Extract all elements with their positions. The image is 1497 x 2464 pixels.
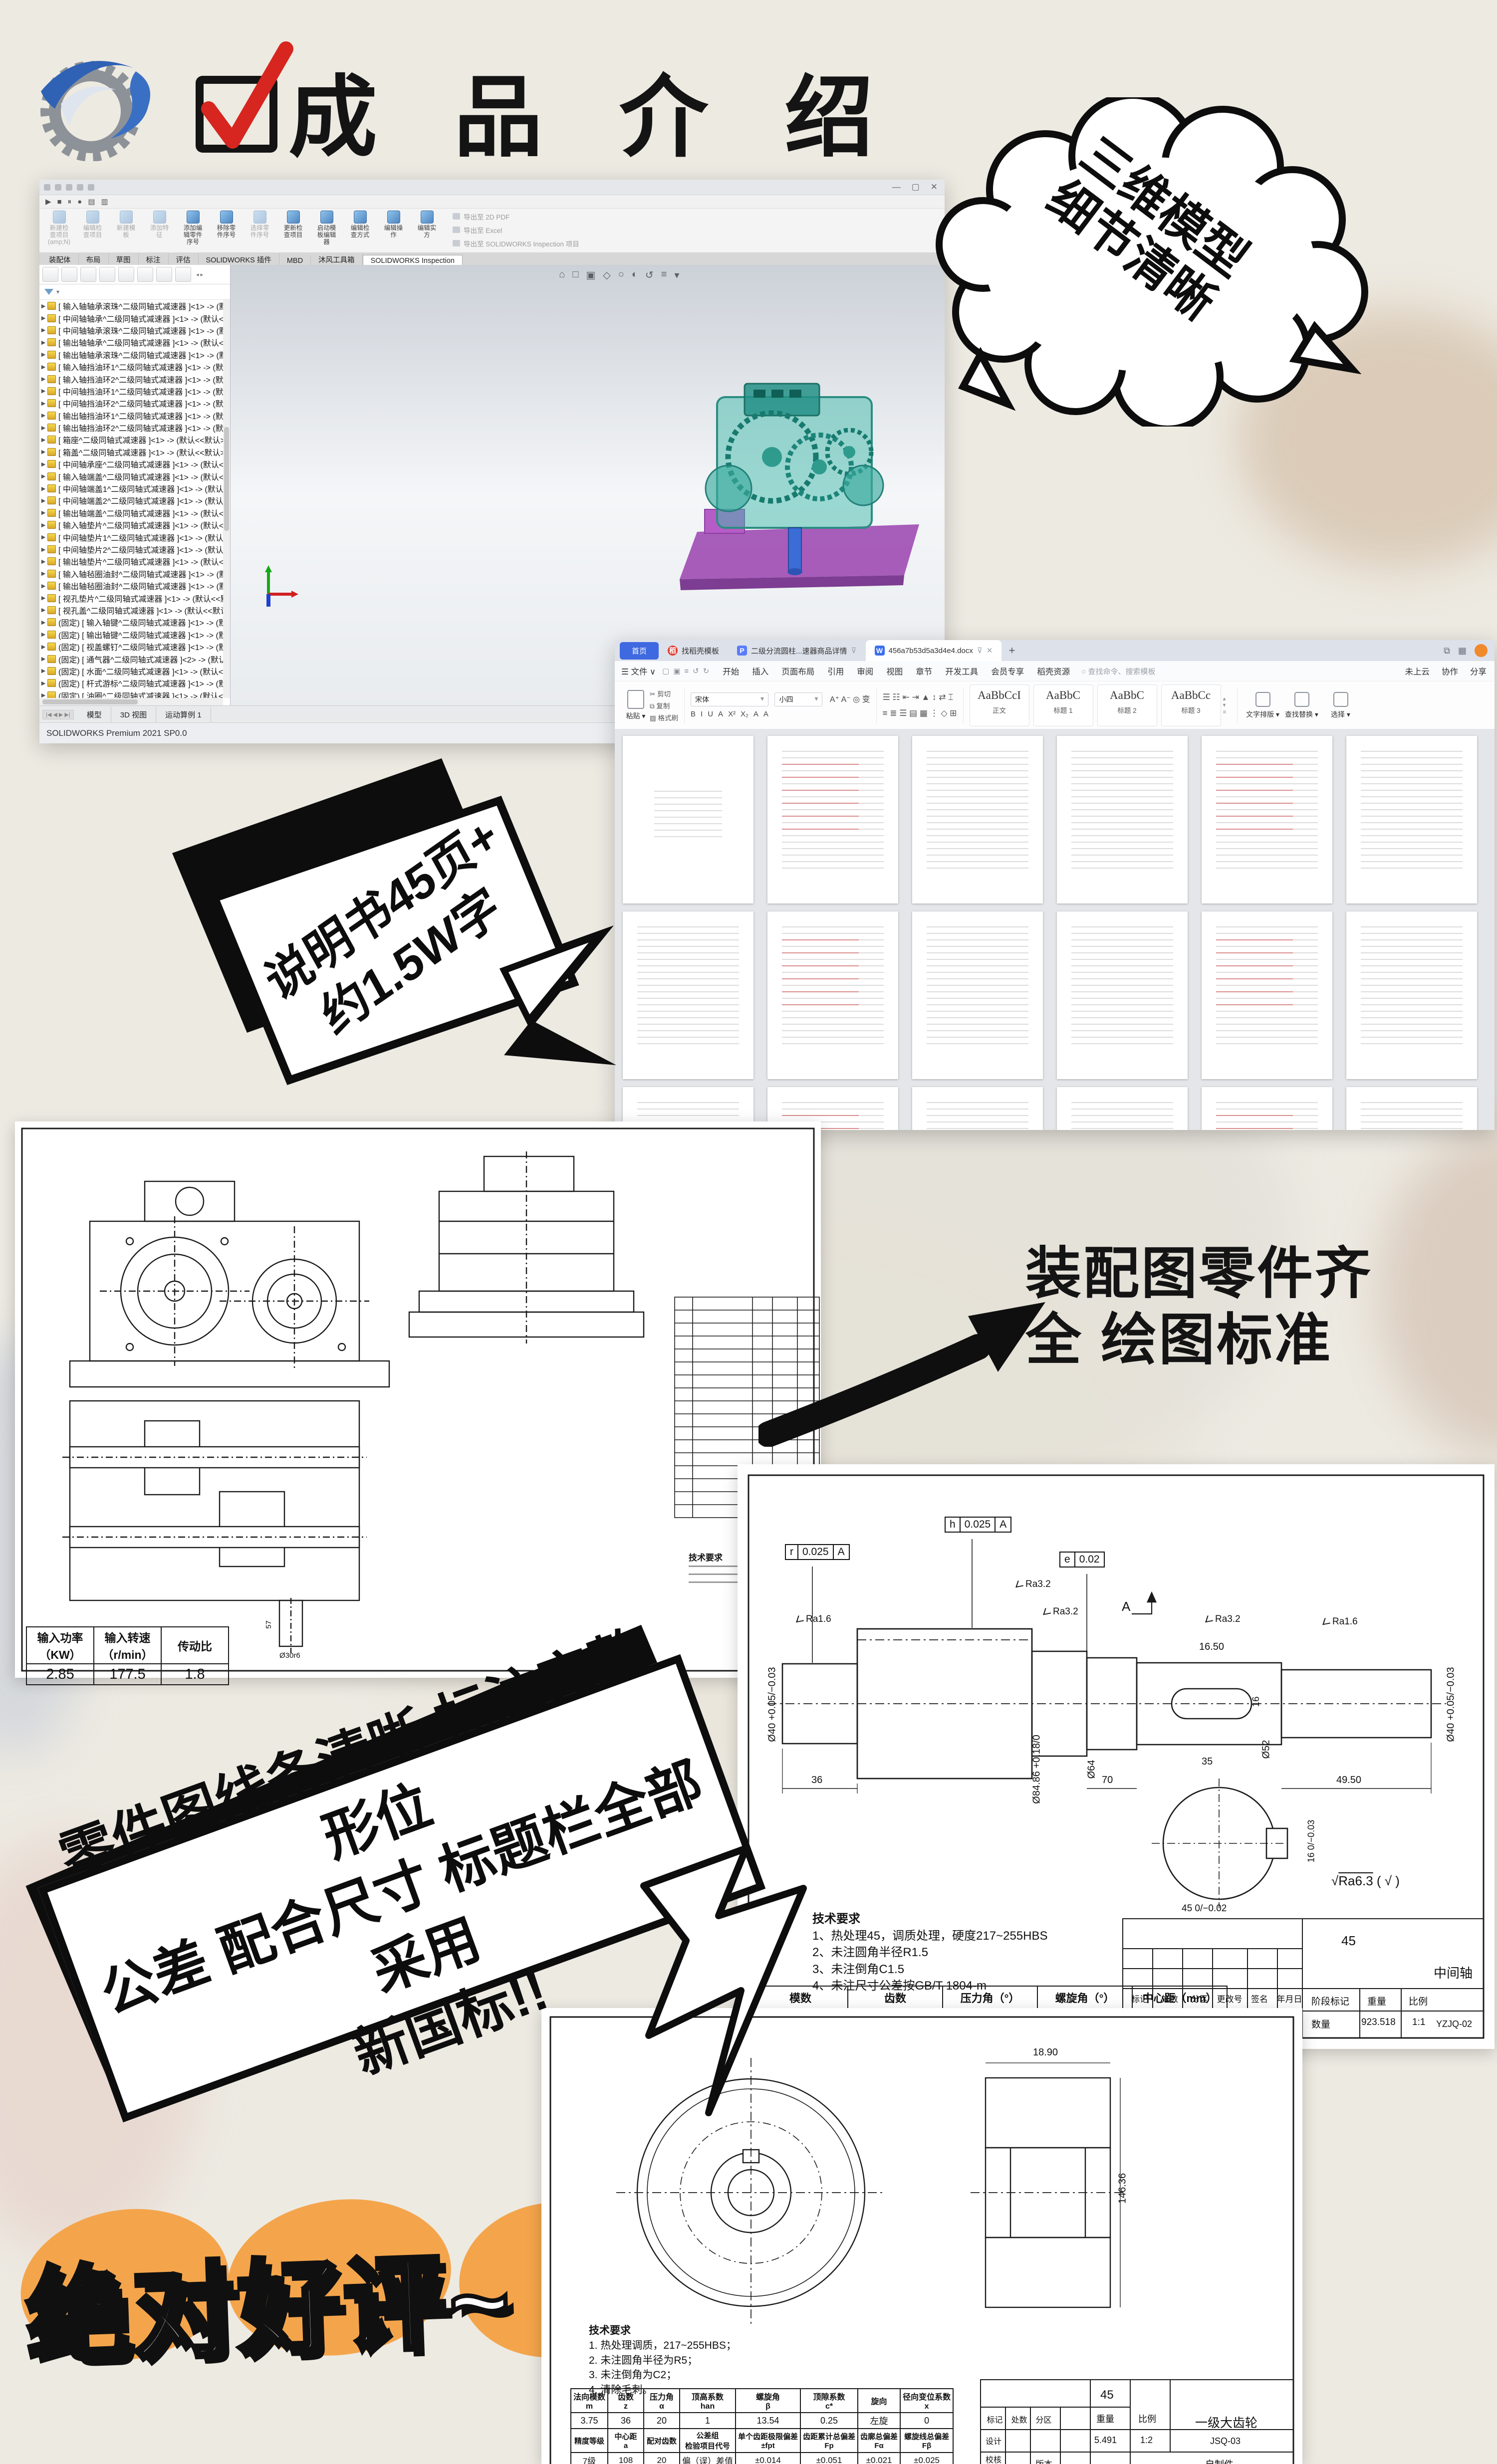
account-action[interactable]: 未上云 (1405, 665, 1430, 677)
tree-horizontal-scrollbar[interactable] (39, 698, 223, 706)
account-action[interactable]: 分享 (1470, 665, 1487, 677)
export-item[interactable]: 导出至 Excel (453, 225, 579, 235)
tree-item[interactable]: ▶ [ 输入轴毡圈油封^二级同轴式减速器 ]<1> -> (默认< (39, 568, 223, 580)
tree-item[interactable]: ▶ [ 中间轴轴承^二级同轴式减速器 ]<1> -> (默认<<默 (39, 312, 223, 324)
displaymanager-icon[interactable] (118, 267, 134, 282)
ribbon-button[interactable]: 新建检 查项目 (amp;N) (42, 209, 76, 245)
expand-arrow-icon[interactable]: ▶ (39, 607, 47, 613)
tree-item[interactable]: ▶ [ 输出轴挡油环1^二级同轴式减速器 ]<1> -> (默认<< (39, 410, 223, 422)
sheet-nav-icons[interactable]: |◀ ◀ ▶ ▶| (42, 710, 74, 719)
tree-item[interactable]: ▶ [ 输入轴挡油环2^二级同轴式减速器 ]<1> -> (默认<< (39, 373, 223, 385)
wps-ribbon: 粘贴 ▾ ✂ 剪切 ⧉ 复制 ▨ 格式刷 宋体▾ 小四▾ A⁺ A⁻ ◎ 变 B… (615, 681, 1495, 730)
shaft-tech-requirements: 技术要求 1、热处理45，调质处理，硬度217~255HBS2、未注圆角半径R1… (812, 1911, 1048, 1995)
pin-icon[interactable]: ⊽ (977, 646, 983, 655)
font-grow-shrink-icons[interactable]: A⁺ A⁻ ◎ 变 (830, 695, 870, 704)
viewport-tool-icon[interactable]: ○ (618, 269, 624, 281)
tree-item-label: [ 输入轴端盖^二级同轴式减速器 ]<1> -> (默认<<默 (58, 470, 223, 482)
sw-tab[interactable]: 标注 (139, 253, 169, 266)
tree-item[interactable]: ▶ [ 箱盖^二级同轴式减速器 ]<1> -> (默认<<默认>_显 (39, 446, 223, 458)
page-thumbnail[interactable] (1057, 911, 1188, 1079)
macro-icon[interactable]: ▶ (45, 197, 51, 206)
expand-arrow-icon[interactable]: ▶ (39, 570, 47, 577)
propertymanager-icon[interactable] (61, 267, 77, 282)
part-icon (47, 412, 56, 420)
tree-item[interactable]: ▶ (固定) [ 通气器^二级同轴式减速器 ]<2> -> (默认<< (39, 653, 223, 665)
ribbon-button-icon (153, 211, 166, 224)
tree-item-label: [ 箱盖^二级同轴式减速器 ]<1> -> (默认<<默认>_显 (58, 446, 223, 458)
tab-presentation[interactable]: P 二级分流圆柱...速器商品详情 ⊽ (728, 640, 866, 661)
expand-arrow-icon[interactable]: ▶ (39, 364, 47, 370)
ribbon-button-icon (253, 211, 266, 224)
viewport-tool-icon[interactable]: ≡ (661, 269, 667, 281)
expand-arrow-icon[interactable]: ▶ (39, 668, 47, 674)
wps-menu-item[interactable]: 开始 (723, 665, 739, 677)
tree-item[interactable]: ▶ [ 中间轴轴承滚珠^二级同轴式减速器 ]<1> -> (默认< (39, 324, 223, 336)
tree-item[interactable]: ▶ [ 输出轴挡油环2^二级同轴式减速器 ]<1> -> (默认<< (39, 422, 223, 434)
tree-item-label: [ 输入轴轴承滚珠^二级同轴式减速器 ]<1> -> (默认< (58, 300, 223, 312)
expand-arrow-icon[interactable]: ▶ (39, 692, 47, 698)
close-tab-icon[interactable]: ✕ (987, 646, 993, 655)
sw-tab[interactable]: 评估 (169, 253, 199, 266)
wps-menu-item[interactable]: 页面布局 (781, 665, 814, 677)
wps-menu-item[interactable]: 插入 (752, 665, 768, 677)
expand-arrow-icon[interactable]: ▶ (39, 412, 47, 419)
page-thumbnail[interactable] (1346, 736, 1477, 903)
file-menu[interactable]: ☰ 文件 ∨ (621, 665, 656, 677)
ppt-file-icon: P (737, 646, 747, 656)
shaft-drawing-sheet: r0.025A h0.025A e0.02 Ra1.6 Ra3.2 Ra3.2 … (738, 1464, 1495, 2049)
expand-arrow-icon[interactable]: ▶ (39, 546, 47, 553)
tree-item[interactable]: ▶ [ 输入轴垫片^二级同轴式减速器 ]<1> -> (默认<<默 (39, 519, 223, 531)
ribbon-button-icon (387, 211, 400, 224)
ribbon-button[interactable]: 添加特 征 (143, 209, 176, 245)
param-value: 20 (644, 2413, 680, 2429)
wps-document-area[interactable] (615, 729, 1495, 1130)
tb-label: 设计 (986, 2433, 1001, 2452)
page-thumbnail[interactable] (1346, 911, 1477, 1079)
viewport-tool-icon[interactable]: ↺ (645, 269, 654, 281)
tree-item-label: (固定) [ 视盖螺钉^二级同轴式减速器 ]<1> -> (默认< (58, 641, 223, 653)
panel-arrows[interactable]: ◂ ▸ (196, 271, 203, 278)
param-value: 13.54 (736, 2413, 800, 2429)
format-button[interactable]: X² (728, 710, 736, 718)
wps-menu-item[interactable]: 章节 (916, 665, 932, 677)
tool-button[interactable]: 选择 ▾ (1321, 692, 1360, 719)
style-label: 标题 1 (1034, 705, 1093, 715)
param-header2: 螺旋线总偏差 Fβ (900, 2429, 953, 2453)
part-icon (47, 606, 56, 614)
tree-item[interactable]: ▶ (固定) [ 杆式游标^二级同轴式减速器 ]<1> -> (默认< (39, 677, 223, 689)
tab-document-active[interactable]: W 456a7b53d5a3d4e4.docx ⊽ ✕ (866, 640, 1002, 661)
tree-item-label: [ 输出轴挡油环2^二级同轴式减速器 ]<1> -> (默认<< (58, 422, 223, 434)
gearbox-3d-model[interactable] (670, 360, 945, 599)
viewport-tool-icon[interactable]: ▾ (674, 269, 679, 281)
page-thumbnail[interactable] (767, 911, 898, 1079)
format-button[interactable]: A (763, 710, 768, 718)
expand-arrow-icon[interactable]: ▶ (39, 509, 47, 516)
tree-item[interactable]: ▶ [ 输出轴轴承滚珠^二级同轴式减速器 ]<1> -> (默认< (39, 349, 223, 361)
paragraph-group[interactable]: ☰ ☷ ⇤ ⇥ ▲ ↕ ⇄ ⌶ ≡ ≣ ☰ ▤ ▦ ⋮ ◇ ⊞ (883, 689, 957, 722)
wps-menu-item[interactable]: 审阅 (857, 665, 873, 677)
format-button[interactable]: A (753, 710, 758, 718)
tree-item[interactable]: ▶ [ 中间轴挡油环2^二级同轴式减速器 ]<1> -> (默认<< (39, 397, 223, 409)
gtb-weight-label: 重量 (1096, 2412, 1114, 2425)
power-table-value: 177.5 (94, 1664, 161, 1685)
tree-item-label: [ 输出轴轴承滚珠^二级同轴式减速器 ]<1> -> (默认< (58, 349, 223, 361)
expand-arrow-icon[interactable]: ▶ (39, 388, 47, 394)
expand-arrow-icon[interactable]: ▶ (39, 558, 47, 565)
ribbon-button-icon (354, 211, 367, 224)
gtb-material: 45 (1100, 2388, 1114, 2402)
tree-item[interactable]: ▶ (固定) [ 水面^二级同轴式减速器 ]<1> -> (默认<<默 (39, 665, 223, 677)
tree-item-label: [ 中间轴端盖2^二级同轴式减速器 ]<1> -> (默认<<默 (58, 494, 223, 506)
page-thumbnails (623, 736, 1491, 1130)
tree-item[interactable]: ▶ [ 中间轴端盖2^二级同轴式减速器 ]<1> -> (默认<<默 (39, 494, 223, 506)
wps-menu-item[interactable]: 视图 (886, 665, 903, 677)
export-item[interactable]: 导出至 2D PDF (453, 212, 579, 222)
paste-button[interactable]: 粘贴 ▾ (622, 690, 650, 721)
wps-tabbar: 首页 稻 找稻壳模板 P 二级分流圆柱...速器商品详情 ⊽ W 456a7b5… (615, 640, 1495, 661)
param-value2: 偏（误）差值 (680, 2453, 736, 2464)
part-icon (47, 570, 56, 578)
tb-label: 更改号 (1215, 1992, 1245, 2005)
gear-table-header: 压力角（°） (943, 1986, 1037, 2009)
tree-item-label: [ 输入轴毡圈油封^二级同轴式减速器 ]<1> -> (默认< (58, 568, 223, 580)
export-item[interactable]: 导出至 SOLIDWORKS Inspection 项目 (453, 238, 579, 248)
format-row: BIUAX²X₂AA (691, 710, 870, 718)
banner-tail (639, 1841, 808, 2130)
manual-bubble: 说明书45页+约1.5W字 (160, 748, 639, 1108)
expand-arrow-icon[interactable]: ▶ (39, 595, 47, 601)
wps-menu-item[interactable]: 引用 (827, 665, 844, 677)
param-header: 顶隙系数 c* (800, 2389, 858, 2413)
ribbon-button[interactable]: 新建模 板 (109, 209, 143, 245)
expand-arrow-icon[interactable]: ▶ (39, 534, 47, 540)
tree-item-label: [ 视孔盖^二级同轴式减速器 ]<1> -> (默认<<默认>_ (58, 604, 223, 616)
power-table-header: 输入转速（r/min） (94, 1627, 161, 1664)
wps-menu-item[interactable]: 开发工具 (945, 665, 978, 677)
tree-item[interactable]: ▶ [ 输入轴轴承滚珠^二级同轴式减速器 ]<1> -> (默认< (39, 300, 223, 312)
ribbon-button-icon (120, 211, 133, 224)
expand-arrow-icon[interactable]: ▶ (39, 680, 47, 686)
sw-bottom-tab[interactable]: 模型 (78, 707, 111, 722)
datum-frame-e: e0.02 (1059, 1552, 1105, 1568)
gear-logo (31, 44, 181, 161)
page-thumbnail[interactable] (1202, 736, 1332, 903)
gear-dim-v: 146.36 (1117, 2156, 1129, 2221)
dim: 49.50 (1336, 1775, 1361, 1786)
promo-poster: 成 品 介 绍 — ▢ ✕ ▶■⏸●▤▥ 新建检 查项目 (amp;N) (0, 0, 1497, 2464)
ribbon-button[interactable]: 编辑操 作 (377, 209, 410, 245)
expand-arrow-icon[interactable]: ▶ (39, 619, 47, 626)
tree-item[interactable]: ▶ [ 输出轴垫片^二级同轴式减速器 ]<1> -> (默认<<默 (39, 555, 223, 567)
format-button[interactable]: U (708, 710, 713, 718)
expand-arrow-icon[interactable]: ▶ (39, 437, 47, 443)
featuremanager-icon[interactable] (42, 267, 58, 282)
format-button[interactable]: A (718, 710, 723, 718)
gear-table-header: 螺旋角（°） (1037, 1986, 1132, 2009)
sw-bottom-tab[interactable]: 3D 视图 (111, 707, 156, 722)
configuration-icon[interactable] (80, 267, 96, 282)
tree-item[interactable]: ▶ [ 输入轴端盖^二级同轴式减速器 ]<1> -> (默认<<默 (39, 470, 223, 482)
expand-arrow-icon[interactable]: ▶ (39, 351, 47, 358)
tree-item-label: (固定) [ 输入轴键^二级同轴式减速器 ]<1> -> (默认< (58, 616, 223, 628)
dim: Ø40 +0.05/−0.03 (767, 1640, 778, 1770)
style-item[interactable]: AaBbC 标题 2 (1097, 684, 1157, 726)
style-sample: AaBbCc (1162, 689, 1221, 702)
expand-arrow-icon[interactable]: ▶ (39, 425, 47, 431)
tree-item[interactable]: ▶ [ 箱座^二级同轴式减速器 ]<1> -> (默认<<默认>_显 (39, 434, 223, 446)
styles-scroll[interactable]: ▴▾≡ (1223, 695, 1231, 715)
tree-item[interactable]: ▶ [ 中间轴垫片1^二级同轴式减速器 ]<1> -> (默认<<默 (39, 531, 223, 543)
sw-tab[interactable]: SOLIDWORKS 插件 (199, 253, 279, 266)
macro-icon[interactable]: ⏸ (68, 198, 72, 206)
window-view-icon[interactable]: ⧉ (1444, 646, 1450, 656)
part-icon (47, 436, 56, 444)
format-painter-button[interactable]: ▨ 格式刷 (650, 712, 678, 722)
expand-arrow-icon[interactable]: ▶ (39, 376, 47, 382)
export-icon (453, 213, 460, 220)
ribbon-button[interactable]: 添加编 辑零件 序号 (176, 209, 210, 245)
assembly-drawing-sheet: 57 Ø30r6 技术要求 输入功率（KW）输入转速（r/min）传动比 2.8… (15, 1121, 821, 1678)
expand-arrow-icon[interactable]: ▶ (39, 473, 47, 479)
part-icon (47, 351, 56, 359)
tb-code: YZJQ-02 (1436, 2019, 1472, 2029)
wps-menu-item[interactable]: 会员专享 (991, 665, 1024, 677)
pin-icon[interactable]: ⊽ (851, 646, 857, 655)
tb-label: 年月日 (1274, 1992, 1304, 2005)
simulation-icon[interactable] (156, 267, 172, 282)
tb-row-labels: 标记处数分区更改号签名年月日 (1125, 1992, 1304, 2005)
viewport-tool-icon[interactable]: □ (572, 269, 578, 281)
tree-item[interactable]: ▶ [ 中间轴端盖1^二级同轴式减速器 ]<1> -> (默认<<默 (39, 482, 223, 494)
new-tab-button[interactable]: + (1008, 644, 1015, 657)
dim: Ø84.86 +0.18/0 (1031, 1705, 1043, 1834)
sw-tab[interactable]: 装配体 (41, 253, 79, 266)
viewport-tool-icon[interactable]: ▣ (586, 269, 595, 281)
param-value: 左旋 (858, 2413, 900, 2429)
ribbon-button[interactable]: 启动模 板编辑 器 (310, 209, 343, 245)
page-thumbnail[interactable] (623, 911, 753, 1079)
tab-home[interactable]: 首页 (620, 642, 659, 660)
style-item[interactable]: AaBbC 标题 1 (1033, 684, 1093, 726)
tb-scale: 1:1 (1412, 2017, 1425, 2028)
expand-arrow-icon[interactable]: ▶ (39, 497, 47, 504)
sw-tab[interactable]: 草图 (109, 253, 139, 266)
page-thumbnail[interactable] (1057, 736, 1188, 903)
macro-icon[interactable]: ● (77, 198, 82, 206)
expand-arrow-icon[interactable]: ▶ (39, 644, 47, 650)
tree-vertical-scrollbar[interactable] (223, 300, 230, 698)
expand-arrow-icon[interactable]: ▶ (39, 485, 47, 492)
cut-button[interactable]: ✂ 剪切 (650, 688, 678, 698)
viewport-tool-icon[interactable]: ◇ (603, 269, 610, 281)
account-action[interactable]: 协作 (1442, 665, 1458, 677)
tree-item[interactable]: ▶ [ 输出轴轴承^二级同轴式减速器 ]<1> -> (默认<<默 (39, 336, 223, 348)
tree-item-label: [ 输入轴垫片^二级同轴式减速器 ]<1> -> (默认<<默 (58, 519, 223, 531)
word-file-icon: W (875, 646, 885, 656)
maximize-icon[interactable]: ▢ (912, 182, 920, 192)
style-item[interactable]: AaBbCc 标题 3 (1161, 684, 1221, 726)
tab-template[interactable]: 稻 找稻壳模板 (659, 640, 728, 661)
tree-item-label: [ 输出轴轴承^二级同轴式减速器 ]<1> -> (默认<<默 (58, 336, 223, 348)
tree-item[interactable]: ▶ [ 输入轴挡油环1^二级同轴式减速器 ]<1> -> (默认<< (39, 361, 223, 373)
tree-item-label: [ 中间轴轴承^二级同轴式减速器 ]<1> -> (默认<<默 (58, 312, 223, 324)
page-thumbnail[interactable] (1346, 1087, 1477, 1130)
expand-arrow-icon[interactable]: ▶ (39, 339, 47, 346)
macro-icon[interactable]: ■ (57, 198, 62, 206)
sw-tab[interactable]: 沐风工具箱 (311, 253, 363, 266)
quick-icons[interactable]: ▢▣≡↺↻ (662, 667, 713, 675)
param-value: 36 (608, 2413, 644, 2429)
ribbon-button[interactable]: 移除零 件序号 (210, 209, 243, 245)
ribbon-button-icon (220, 211, 233, 224)
expand-arrow-icon[interactable]: ▶ (39, 315, 47, 321)
format-button[interactable]: I (701, 710, 703, 718)
param-header: 旋向 (858, 2389, 900, 2413)
expand-arrow-icon[interactable]: ▶ (39, 631, 47, 638)
tree-item-label: (固定) [ 通气器^二级同轴式减速器 ]<2> -> (默认<< (58, 653, 223, 665)
sw-tree-filter[interactable]: ▾ (39, 284, 230, 300)
cam-icon[interactable] (137, 267, 153, 282)
param-header: 压力角 α (644, 2389, 680, 2413)
sw-titlebar: — ▢ ✕ (39, 180, 945, 195)
gtb-row-labels: 标记处数分区 (983, 2413, 1056, 2425)
datum-frame-r: r0.025A (785, 1544, 850, 1560)
ribbon-button[interactable]: 更新检 查项目 (276, 209, 310, 245)
expand-arrow-icon[interactable]: ▶ (39, 400, 47, 407)
search-input[interactable]: ○ 查找命令、搜索模板 (1081, 666, 1155, 676)
macro-icon[interactable]: ▤ (88, 197, 95, 206)
tree-item[interactable]: ▶ [ 视孔垫片^二级同轴式减速器 ]<1> -> (默认<<默认 (39, 592, 223, 604)
part-icon (47, 618, 56, 626)
tb-qty: 数量 (1311, 2017, 1330, 2030)
ribbon-button-label: 编辑操 作 (377, 224, 410, 238)
gtb-code: JSQ-03 (1210, 2436, 1241, 2447)
font-size-select[interactable]: 小四▾ (774, 692, 822, 706)
dim: Ø40 +0.05/−0.03 (1446, 1640, 1457, 1770)
param-header: 径向变位系数 x (900, 2389, 953, 2413)
assembly-tech-title: 技术要求 (689, 1551, 723, 1563)
part-icon (47, 545, 56, 553)
ribbon-button[interactable]: 选择零 件序号 (243, 209, 276, 245)
wps-menubar: ☰ 文件 ∨ ▢▣≡↺↻ 开始插入页面布局引用审阅视图章节开发工具会员专享稻壳资… (615, 661, 1495, 681)
tree-item[interactable]: ▶ [ 视孔盖^二级同轴式减速器 ]<1> -> (默认<<默认>_ (39, 604, 223, 616)
param-header2: 公差组 检验项目代号 (680, 2429, 736, 2453)
tree-item[interactable]: ▶ [ 中间轴挡油环1^二级同轴式减速器 ]<1> -> (默认<< (39, 385, 223, 397)
expand-arrow-icon[interactable]: ▶ (39, 522, 47, 528)
ribbon-button-label: 添加编 辑零件 序号 (176, 224, 210, 245)
style-sample: AaBbCcI (970, 689, 1029, 702)
style-item[interactable]: AaBbCcI 正文 (970, 684, 1029, 726)
minimize-icon[interactable]: — (892, 182, 901, 192)
page-thumbnail[interactable] (912, 736, 1043, 903)
expand-arrow-icon[interactable]: ▶ (39, 461, 47, 467)
orientation-triad-icon (258, 564, 303, 609)
tree-item[interactable]: ▶ [ 输出轴毡圈油封^二级同轴式减速器 ]<1> -> (默认< (39, 580, 223, 592)
page-thumbnail[interactable] (912, 911, 1043, 1079)
tree-item[interactable]: ▶ [ 输出轴端盖^二级同轴式减速器 ]<1> -> (默认<<默 (39, 507, 223, 519)
tree-item-label: [ 输出轴垫片^二级同轴式减速器 ]<1> -> (默认<<默 (58, 555, 223, 567)
styles-gallery: AaBbCcI 正文 AaBbC 标题 1 AaBbC 标题 2 Aa (970, 684, 1221, 726)
page-thumbnail[interactable] (1202, 911, 1332, 1079)
wps-menu-item[interactable]: 稻壳资源 (1037, 665, 1070, 677)
expand-arrow-icon[interactable]: ▶ (39, 327, 47, 333)
ribbon-button-label: 编辑检 查方式 (343, 224, 377, 238)
macro-icon[interactable]: ▥ (101, 197, 108, 206)
tree-item-label: [ 中间轴垫片2^二级同轴式减速器 ]<1> -> (默认<<默 (58, 543, 223, 555)
tool-button[interactable]: 查找替换 ▾ (1282, 692, 1321, 719)
tree-item-label: [ 视孔垫片^二级同轴式减速器 ]<1> -> (默认<<默认 (58, 592, 223, 604)
ribbon-button[interactable]: 编辑实 方 (410, 209, 444, 245)
tb-label: 标记 (983, 2413, 1007, 2425)
expand-arrow-icon[interactable]: ▶ (39, 656, 47, 662)
tree-item[interactable]: ▶ (固定) [ 油圈^二级同轴式减速器 ]<1> -> (默认<<默 (39, 689, 223, 698)
style-label: 正文 (970, 705, 1029, 715)
tech-line: 3. 未注倒角为C2； (589, 2368, 737, 2383)
part-icon (47, 448, 56, 456)
viewport-tool-icon[interactable]: ◐ (632, 269, 638, 281)
style-label: 标题 2 (1098, 705, 1157, 715)
page-thumbnail[interactable] (623, 736, 753, 903)
tree-item-label: (固定) [ 油圈^二级同轴式减速器 ]<1> -> (默认<<默 (58, 689, 223, 698)
font-name-select[interactable]: 宋体▾ (691, 692, 768, 706)
power-table-header: 输入功率（KW） (26, 1627, 94, 1664)
toolbox-icon[interactable] (175, 267, 191, 282)
part-icon (47, 521, 56, 529)
tree-item-label: [ 中间轴挡油环1^二级同轴式减速器 ]<1> -> (默认<< (58, 385, 223, 397)
param-value2: 108 (608, 2453, 644, 2464)
window-grid-icon[interactable]: ▦ (1458, 646, 1467, 656)
format-button[interactable]: X₂ (741, 710, 748, 718)
expand-arrow-icon[interactable]: ▶ (39, 448, 47, 455)
part-icon (47, 667, 56, 675)
tree-item[interactable]: ▶ [ 中间轴承座^二级同轴式减速器 ]<1> -> (默认<<默 (39, 458, 223, 470)
page-thumbnail[interactable] (1202, 1087, 1332, 1130)
page-thumbnail[interactable] (1057, 1087, 1188, 1130)
tree-item-label: [ 中间轴挡油环2^二级同轴式减速器 ]<1> -> (默认<< (58, 397, 223, 409)
tech-line: 2、未注圆角半径R1.5 (812, 1944, 1048, 1961)
filter-icon (44, 289, 53, 295)
tree-item-label: (固定) [ 水面^二级同轴式减速器 ]<1> -> (默认<<默 (58, 665, 223, 677)
part-icon (47, 387, 56, 395)
sw-bottom-tab[interactable]: 运动算例 1 (156, 707, 211, 722)
gtb-version: 版本 (1035, 2457, 1052, 2464)
ribbon-button[interactable]: 编辑检 查项目 (76, 209, 109, 245)
export-icon (453, 226, 460, 233)
avatar[interactable] (1475, 644, 1488, 657)
page-thumbnail[interactable] (912, 1087, 1043, 1130)
copy-button[interactable]: ⧉ 复制 (650, 700, 678, 710)
expand-arrow-icon[interactable]: ▶ (39, 303, 47, 309)
dimxpert-icon[interactable] (99, 267, 115, 282)
tree-item-label: [ 输入轴挡油环1^二级同轴式减速器 ]<1> -> (默认<< (58, 361, 223, 373)
viewport-tool-icon[interactable]: ⌂ (559, 269, 565, 281)
ribbon-button[interactable]: 编辑检 查方式 (343, 209, 377, 245)
param-value2: ±0.025 (900, 2453, 953, 2464)
tree-item[interactable]: ▶ (固定) [ 输出轴键^二级同轴式减速器 ]<1> -> (默认< (39, 629, 223, 641)
tree-item[interactable]: ▶ (固定) [ 输入轴键^二级同轴式减速器 ]<1> -> (默认< (39, 616, 223, 628)
expand-arrow-icon[interactable]: ▶ (39, 583, 47, 589)
sw-tab[interactable]: 布局 (79, 253, 109, 266)
tool-button[interactable]: 文字排版 ▾ (1244, 692, 1282, 719)
tree-item[interactable]: ▶ [ 中间轴垫片2^二级同轴式减速器 ]<1> -> (默认<<默 (39, 543, 223, 555)
ribbon-button-label: 更新检 查项目 (276, 224, 310, 238)
format-button[interactable]: B (691, 710, 696, 718)
page-thumbnail[interactable] (767, 736, 898, 903)
tree-item[interactable]: ▶ (固定) [ 视盖螺钉^二级同轴式减速器 ]<1> -> (默认< (39, 641, 223, 653)
dim: Ø52 (1261, 1720, 1272, 1780)
